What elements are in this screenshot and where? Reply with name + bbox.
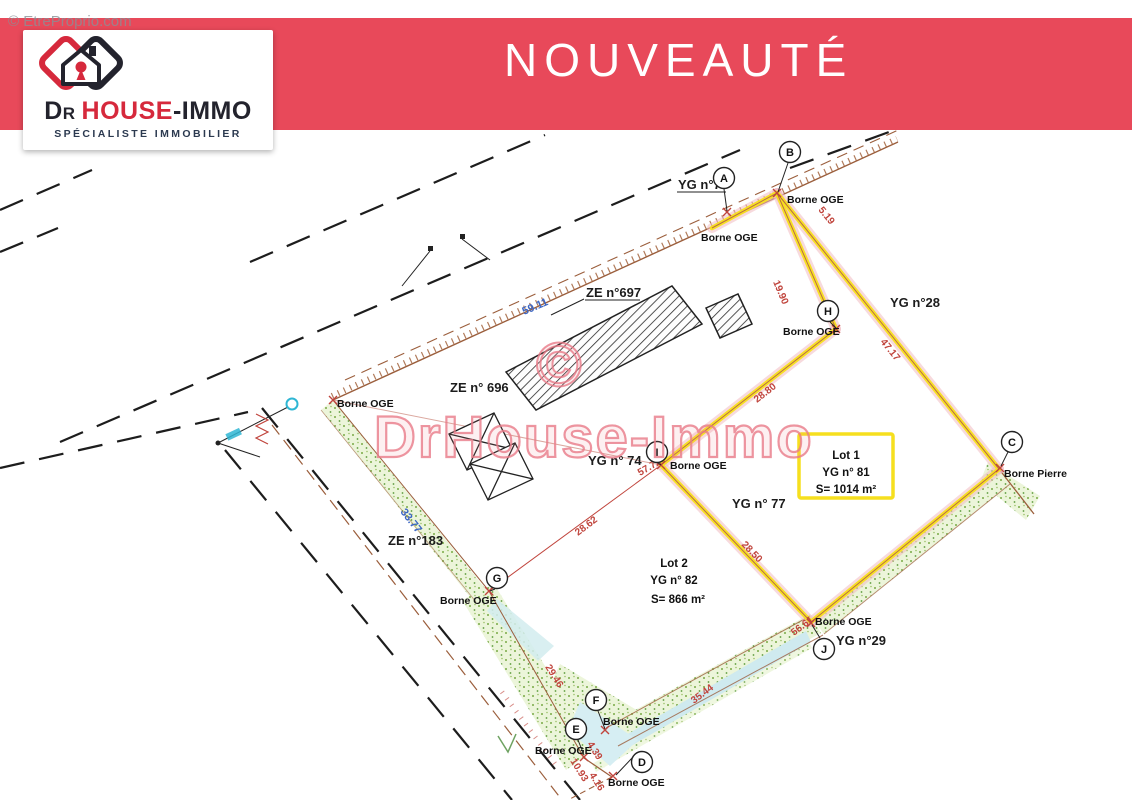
measurement: 59.11: [520, 296, 549, 318]
parcel-label: ZE n°697: [586, 285, 641, 300]
parcel-label: YG n°29: [836, 633, 886, 648]
svg-text:F: F: [593, 695, 600, 707]
utility-icon: [287, 399, 298, 410]
pole-icon: [428, 246, 433, 251]
survey-point-b: B: [778, 142, 801, 193]
parcel-label: YG n° 77: [732, 496, 786, 511]
measurement: 4.16: [586, 771, 606, 794]
logo-wordmark: DRHOUSE-IMMO: [23, 99, 273, 124]
source-watermark: © EtreProprio.com: [8, 13, 132, 30]
svg-text:B: B: [786, 147, 794, 159]
parcel-label: YG n°28: [890, 295, 940, 310]
lot1-title: Lot 1: [832, 450, 860, 462]
svg-text:J: J: [821, 644, 827, 656]
borne-label: Borne OGE: [701, 232, 758, 244]
dr-house-immo-logo-icon: [23, 34, 139, 98]
logo-word-immo: -IMMO: [173, 97, 252, 125]
lot2-label: Lot 2 YG n° 82 S= 866 m²: [650, 558, 705, 606]
borne-label: Borne OGE: [787, 194, 844, 206]
building-hatched-annex: [706, 294, 752, 338]
banner-title: NOUVEAUTÉ: [504, 33, 853, 87]
logo-tagline: SPÉCIALISTE IMMOBILIER: [23, 128, 273, 140]
lot1-area: S= 1014 m²: [816, 484, 877, 496]
copyright-watermark-icon: ©: [536, 330, 582, 401]
borne-cross-marks: [329, 189, 1004, 780]
agency-watermark: DrHouse-Immo: [374, 404, 814, 471]
measurement: 19.90: [770, 279, 790, 307]
lot2-title: Lot 2: [660, 558, 687, 570]
svg-text:D: D: [638, 757, 646, 769]
borne-label: Borne OGE: [783, 326, 840, 338]
borne-label: Borne OGE: [815, 616, 872, 628]
logo-word-house: HOUSE: [82, 97, 173, 125]
borne-label: Borne OGE: [603, 716, 660, 728]
svg-text:H: H: [824, 306, 832, 318]
svg-text:G: G: [493, 573, 502, 585]
lot2-parcel: YG n° 82: [650, 575, 697, 587]
svg-text:E: E: [572, 724, 579, 736]
borne-label: Borne Pierre: [1004, 468, 1067, 480]
agency-logo-card: DRHOUSE-IMMO SPÉCIALISTE IMMOBILIER: [23, 30, 273, 150]
borne-label: Borne OGE: [535, 745, 592, 757]
logo-letter-d: D: [44, 97, 63, 125]
talus-marks: [256, 414, 268, 444]
parcel-label: ZE n° 696: [450, 380, 509, 395]
parcel-label: ZE n°183: [388, 533, 443, 548]
borne-label: Borne OGE: [608, 777, 665, 789]
svg-text:A: A: [720, 173, 728, 185]
measurement: 10.93: [567, 757, 590, 784]
survey-point-c: C: [1001, 432, 1023, 467]
lot2-area: S= 866 m²: [651, 594, 705, 606]
measurement: 5.19: [816, 205, 837, 227]
culvert-icon: [225, 428, 242, 441]
borne-label: Borne OGE: [440, 595, 497, 607]
svg-text:C: C: [1008, 437, 1016, 449]
measurement: 28.62: [573, 514, 600, 538]
lot1-parcel: YG n° 81: [822, 467, 870, 479]
logo-letter-r: R: [63, 104, 76, 123]
listing-image: Lot 1 YG n° 81 S= 1014 m² Lot 2 YG n° 82…: [0, 0, 1132, 800]
pole-icon: [460, 234, 465, 239]
